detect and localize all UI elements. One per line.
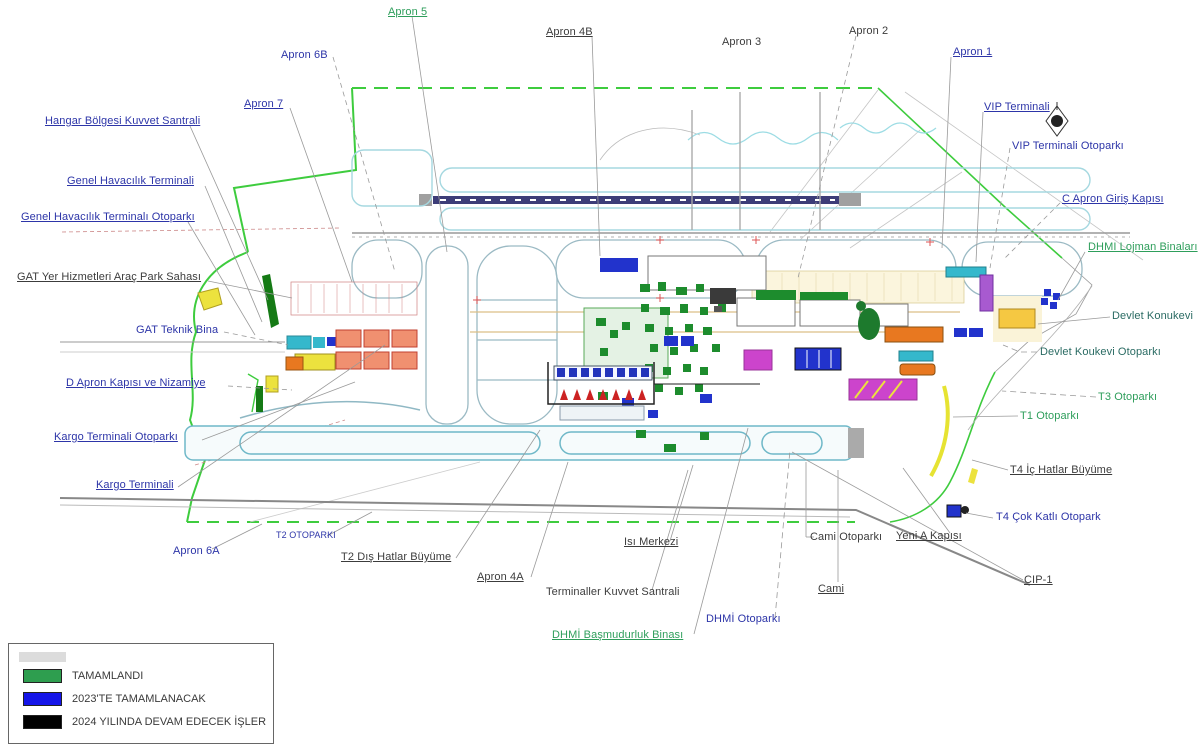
legend-item-2023: 2023'TE TAMAMLANACAK (23, 692, 206, 706)
label-dhmi-otoparki: DHMİ Otoparkı (706, 613, 781, 625)
label-t4-cok-katli-otopark: T4 Çok Katlı Otopark (996, 511, 1101, 523)
label-cip-1: CIP-1 (1024, 574, 1053, 586)
legend-label-completed: TAMAMLANDI (72, 670, 143, 682)
label-gat-teknik-bina: GAT Teknik Bina (136, 324, 218, 336)
label-apron-3: Apron 3 (722, 36, 761, 48)
legend-item-2024: 2024 YILINDA DEVAM EDECEK İŞLER (23, 715, 266, 729)
legend-swatch-completed (23, 669, 62, 683)
label-cami: Cami (818, 583, 844, 595)
label-vip-terminali-otoparki: VIP Terminali Otoparkı (1012, 140, 1124, 152)
label-hangar-bolgesi-kuvvet-santrali: Hangar Bölgesi Kuvvet Santrali (45, 115, 200, 127)
label-c-apron-giris-kapisi: C Apron Giriş Kapısı (1062, 193, 1164, 205)
label-vip-terminali: VIP Terminali (984, 101, 1050, 113)
label-genel-havacilik-terminali: Genel Havacılık Terminali (67, 175, 194, 187)
label-apron-1: Apron 1 (953, 46, 992, 58)
label-terminaller-kuvvet-santrali: Terminaller Kuvvet Santrali (546, 586, 680, 598)
label-dhmi-basmudurluk-binasi: DHMİ Başmudurluk Binası (552, 629, 683, 641)
label-genel-havacilik-terminali-otoparki: Genel Havacılık Terminalı Otoparkı (21, 211, 195, 223)
label-apron-6a: Apron 6A (173, 545, 220, 557)
label-kargo-terminali-otoparki: Kargo Terminali Otoparkı (54, 431, 178, 443)
label-apron-5: Apron 5 (388, 6, 427, 18)
label-t2-otoparki: T2 OTOPARKI (276, 529, 336, 541)
legend-swatch-2023 (23, 692, 62, 706)
buildings (198, 256, 1060, 517)
legend-item-completed: TAMAMLANDI (23, 669, 143, 683)
label-apron-2: Apron 2 (849, 25, 888, 37)
label-d-apron-kapisi: D Apron Kapısı ve Nizamiye (66, 377, 206, 389)
label-yeni-a-kapisi: Yeni A Kapısı (896, 530, 962, 542)
legend-label-2024: 2024 YILINDA DEVAM EDECEK İŞLER (72, 716, 266, 728)
label-gat-yer-hizmetleri: GAT Yer Hizmetleri Araç Park Sahası (17, 271, 201, 283)
label-t4-ic-hatlar-buyume: T4 İç Hatlar Büyüme (1010, 464, 1112, 476)
label-t1-otoparki: T1 Otoparkı (1020, 410, 1079, 422)
south-runway-band (185, 402, 864, 460)
dhmi-lojman-cluster (1041, 289, 1060, 309)
label-t2-dis-hatlar-buyume: T2 Dış Hatlar Büyüme (341, 551, 451, 563)
legend-faded-swatch (19, 652, 66, 662)
label-devlet-konukevi: Devlet Konukevi (1112, 310, 1193, 322)
label-apron-6b: Apron 6B (281, 49, 328, 61)
label-isi-merkezi: Isı Merkezi (624, 536, 678, 548)
label-cami-otoparki: Cami Otoparkı (810, 531, 882, 543)
label-kargo-terminali: Kargo Terminali (96, 479, 174, 491)
label-devlet-koukevi-otoparki: Devlet Koukevi Otoparkı (1040, 346, 1161, 358)
legend-label-2023: 2023'TE TAMAMLANACAK (72, 693, 206, 705)
label-dhmi-lojman-binalari: DHMI Lojman Binaları (1088, 241, 1198, 253)
legend-swatch-2024 (23, 715, 62, 729)
legend: TAMAMLANDI 2023'TE TAMAMLANACAK 2024 YIL… (8, 643, 274, 744)
label-apron-4b: Apron 4B (546, 26, 593, 38)
label-apron-7: Apron 7 (244, 98, 283, 110)
label-t3-otoparki: T3 Otoparkı (1098, 391, 1157, 403)
main-runway (419, 193, 861, 206)
label-apron-4a: Apron 4A (477, 571, 524, 583)
